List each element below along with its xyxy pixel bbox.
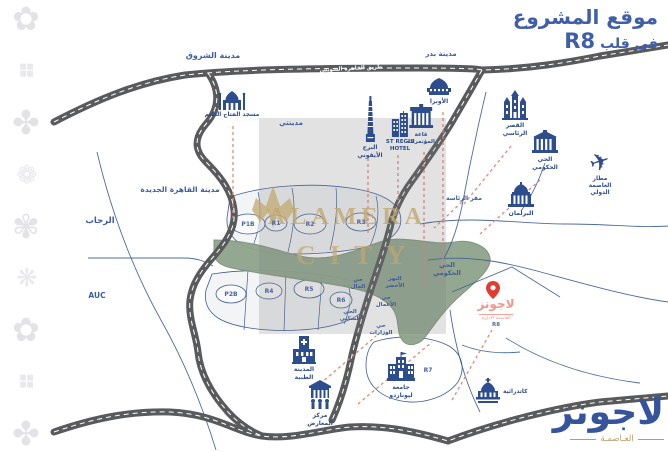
cathedral-icon [476, 378, 500, 408]
location-map-poster: ✿ ❖ ✤ ❁ ✾ ❋ ✿ ❖ ✤ [0, 0, 668, 452]
district-label-r2: R2 [306, 221, 315, 229]
city-label-rehab: الرحاب [85, 216, 114, 227]
city-label-shorouk: مدينة الشروق [186, 51, 240, 61]
landmark-label: القصر الرئاسي [503, 122, 528, 137]
opera-dome-icon [426, 78, 452, 96]
district-label-r4: R4 [265, 288, 274, 296]
landmark-label: مركز المعارض [307, 412, 333, 427]
project-name: لاجونز [477, 297, 514, 311]
brand-tagline: العـاصمـة [570, 434, 664, 444]
district-label-p2b: P2B [224, 291, 237, 299]
university-icon [387, 352, 415, 382]
landmark-cathedral: كاتدرائية [476, 378, 527, 408]
landmark-mosque: مسجد الفتاح العليم [201, 90, 263, 119]
tagline-rule-right [638, 439, 664, 440]
area-label-business-district: حي الأعمال [376, 295, 396, 309]
area-label-ministries-district: حي الوزارات [369, 323, 392, 337]
landmark-label: الأوبرا [430, 98, 448, 106]
city-label-auc: AUC [88, 291, 105, 300]
title-district-code: R8 [564, 29, 595, 53]
tagline-rule-left [570, 439, 596, 440]
tower-icon [364, 96, 376, 142]
landmark-label: كاتدرائية [503, 389, 527, 396]
district-label-r7: R7 [424, 367, 433, 375]
page-title: موقع المشروع فى قلب R8 [513, 6, 658, 53]
city-label-new-cairo: مدينة القاهرة الجديدة [140, 185, 219, 194]
district-label-r5: R5 [305, 286, 314, 294]
title-line2-text: فى قلب [600, 36, 658, 52]
area-label-residential-district: الحي السكني [340, 309, 361, 323]
district-label-r3: R3 [357, 219, 366, 227]
landmark-label: قاعة المؤتمرات [407, 132, 435, 146]
watermark-word: CITY [296, 240, 420, 271]
landmark-label: البرج الأيقوني [357, 144, 382, 159]
district-label-r8: R8 [492, 322, 500, 328]
parliament-dome-icon [507, 182, 535, 208]
landmark-presidential-palace: القصر الرئاسي [502, 90, 528, 137]
area-label-presidency-hq: مقر الرئاسة [446, 195, 482, 203]
government-building-icon [532, 130, 558, 154]
landmark-label: البرلمان [509, 210, 534, 218]
landmark-government-district: الحي الحكومي [532, 130, 558, 171]
columned-hall-icon [409, 104, 433, 130]
brand-logo: لاجونز العـاصمـة [570, 395, 664, 444]
brand-name: لاجونز [570, 395, 664, 431]
title-line1: موقع المشروع [513, 6, 658, 28]
watermark-brand: ALAMERA [268, 204, 427, 231]
landmark-label: مطار العاصمة الدولي [589, 176, 612, 198]
landmark-parliament: البرلمان [507, 182, 535, 218]
landmark-label: مسجد الفتاح العليم [201, 112, 263, 119]
title-line2: فى قلب R8 [513, 29, 658, 53]
area-label-government-district: الحي الحكومي [433, 261, 461, 277]
landmark-opera: الأوبرا [426, 78, 452, 106]
landmark-expo-center: مركز المعارض [307, 380, 333, 427]
airplane-icon: ✈ [587, 147, 614, 176]
city-label-badr: مدينة بدر [425, 50, 456, 59]
district-label-p1b: P1B [241, 221, 254, 229]
landmark-airport: ✈ مطار العاصمة الدولي [589, 150, 612, 198]
mosque-icon [217, 90, 247, 110]
landmark-conference-hall: قاعة المؤتمرات [407, 104, 435, 146]
hospital-icon [292, 336, 316, 364]
area-label-green-river: النهر الأخضر [386, 276, 405, 290]
city-label-madinaty: مدينتي [279, 119, 303, 128]
landmark-medical-city: المدينة الطبية [292, 336, 316, 381]
tagline-text: العـاصمـة [600, 434, 633, 444]
landmark-university: جامعة ليوناردو [387, 352, 415, 399]
landmark-label: المدينة الطبية [294, 366, 314, 381]
palace-icon [502, 90, 528, 120]
landmark-iconic-tower: البرج الأيقوني [357, 96, 382, 159]
landmark-label: جامعة ليوناردو [389, 384, 412, 399]
district-label-r1: R1 [272, 220, 281, 228]
project-subtitle: العاصمة الادارية [479, 314, 513, 321]
district-label-r6: R6 [337, 297, 346, 305]
landmark-label: الحي الحكومي [532, 156, 558, 171]
exhibition-pavilion-icon [307, 380, 333, 410]
area-label-money-district: حي المال [351, 277, 365, 291]
